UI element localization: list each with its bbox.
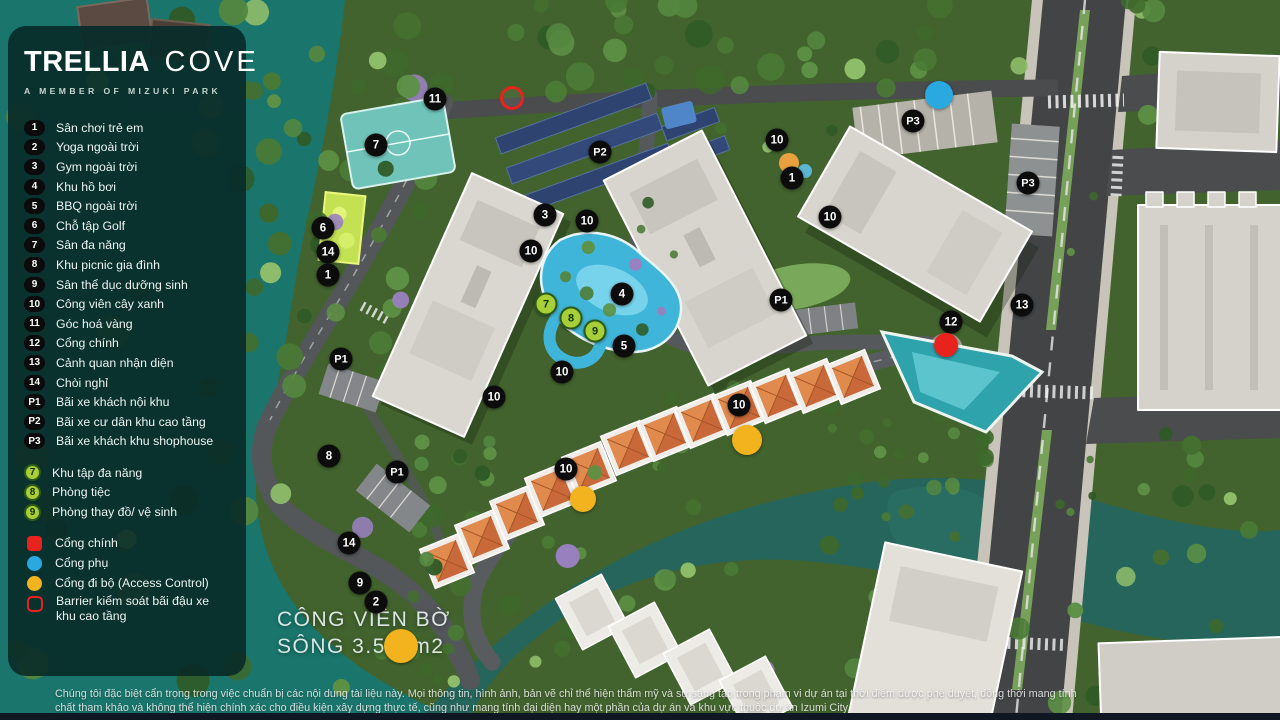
map-marker-1: 1 (781, 167, 804, 190)
map-marker-10: 10 (520, 240, 543, 263)
legend-item-13: 13Cảnh quan nhận diện (24, 353, 236, 373)
legend-badge-11: 11 (24, 316, 45, 332)
map-marker-green-8: 8 (560, 307, 583, 330)
map-marker-yellow-gate (384, 629, 418, 663)
legend-gate-label-yellow: Cổng đi bộ (Access Control) (55, 576, 209, 590)
legend-badge-green-8: 8 (24, 484, 41, 501)
map-marker-6: 6 (312, 217, 335, 240)
map-marker-9: 9 (349, 572, 372, 595)
legend-item-green-8: 8Phòng tiệc (24, 483, 236, 503)
legend-gates-list: Cổng chínhCổng phụCổng đi bộ (Access Con… (24, 534, 236, 625)
map-marker-yellow-gate (570, 486, 596, 512)
legend-label-11: Góc hoá vàng (56, 317, 133, 331)
legend-item-4: 4Khu hồ bơi (24, 177, 236, 197)
map-marker-10: 10 (483, 386, 506, 409)
map-marker-5: 5 (613, 335, 636, 358)
legend-badge-4: 4 (24, 179, 45, 195)
legend-label-P1: Bãi xe khách nội khu (56, 395, 169, 409)
map-marker-10: 10 (555, 458, 578, 481)
map-marker-green-7: 7 (535, 293, 558, 316)
map-marker-10: 10 (819, 206, 842, 229)
map-marker-green-9: 9 (584, 320, 607, 343)
legend-item-2: 2Yoga ngoài trời (24, 138, 236, 158)
disclaimer-line1: Chúng tôi đặc biệt cẩn trọng trong việc … (55, 687, 1195, 701)
legend-gate-red: Cổng chính (24, 534, 236, 553)
legend-label-4: Khu hồ bơi (56, 180, 116, 194)
map-marker-4: 4 (611, 283, 634, 306)
map-marker-14: 14 (338, 532, 361, 555)
legend-label-2: Yoga ngoài trời (56, 140, 139, 154)
map-marker-8: 8 (318, 445, 341, 468)
legend-item-9: 9Sân thể dục dưỡng sinh (24, 275, 236, 295)
map-marker-14: 14 (317, 241, 340, 264)
legend-gate-blue: Cổng phụ (24, 554, 236, 573)
legend-item-10: 10Công viên cây xanh (24, 294, 236, 314)
map-marker-barrier-gate (500, 86, 524, 110)
legend-label-6: Chỗ tập Golf (56, 219, 125, 233)
legend-item-8: 8Khu picnic gia đình (24, 255, 236, 275)
legend-badge-6: 6 (24, 218, 45, 234)
legend-item-7: 7Sân đa năng (24, 236, 236, 256)
legend-numbered-list: 1Sân chơi trẻ em2Yoga ngoài trời3Gym ngo… (24, 118, 236, 451)
legend-badge-P1: P1 (24, 394, 45, 410)
map-marker-red-gate (934, 333, 958, 357)
map-marker-10: 10 (766, 129, 789, 152)
legend-item-green-7: 7Khu tập đa năng (24, 463, 236, 483)
legend-badge-1: 1 (24, 120, 45, 136)
map-marker-3: 3 (534, 204, 557, 227)
legend-label-P3: Bãi xe khách khu shophouse (56, 434, 213, 448)
yellow-gate-icon (27, 576, 42, 591)
legend-item-3: 3Gym ngoài trời (24, 157, 236, 177)
legend-label-green-7: Khu tập đa năng (52, 466, 142, 480)
disclaimer: Chúng tôi đặc biệt cẩn trọng trong việc … (55, 687, 1195, 716)
project-title: TRELLIA COVE (24, 46, 236, 79)
legend-gate-yellow: Cổng đi bộ (Access Control) (24, 574, 236, 593)
legend-label-green-8: Phòng tiệc (52, 485, 110, 499)
map-marker-p1: P1 (386, 461, 409, 484)
legend-item-P2: P2Bãi xe cư dân khu cao tầng (24, 412, 236, 432)
legend-label-9: Sân thể dục dưỡng sinh (56, 278, 188, 292)
legend-label-13: Cảnh quan nhận diện (56, 356, 174, 370)
legend-label-12: Cổng chính (56, 336, 119, 350)
legend-badge-2: 2 (24, 139, 45, 155)
legend-badge-P3: P3 (24, 433, 45, 449)
map-marker-10: 10 (551, 361, 574, 384)
legend-item-P3: P3Bãi xe khách khu shophouse (24, 432, 236, 452)
legend-badge-12: 12 (24, 335, 45, 351)
legend-gate-label-barrier: Barrier kiểm soát bãi đậu xekhu cao tầng (56, 594, 209, 625)
map-marker-10: 10 (576, 210, 599, 233)
map-marker-p1: P1 (330, 348, 353, 371)
legend-badge-5: 5 (24, 198, 45, 214)
legend-label-7: Sân đa năng (56, 238, 126, 252)
legend-item-P1: P1Bãi xe khách nội khu (24, 392, 236, 412)
barrier-gate-icon (27, 596, 43, 612)
legend-badge-3: 3 (24, 159, 45, 175)
map-marker-p1: P1 (770, 289, 793, 312)
map-marker-13: 13 (1011, 294, 1034, 317)
legend-badge-7: 7 (24, 237, 45, 253)
map-marker-p3: P3 (902, 110, 925, 133)
legend-item-11: 11Góc hoá vàng (24, 314, 236, 334)
legend-label-1: Sân chơi trẻ em (56, 121, 143, 135)
legend-label-green-9: Phòng thay đồ/ vệ sinh (52, 505, 177, 519)
legend-item-5: 5BBQ ngoài trời (24, 196, 236, 216)
map-marker-p2: P2 (589, 141, 612, 164)
legend-badge-10: 10 (24, 296, 45, 312)
project-subtitle: A MEMBER OF MIZUKI PARK (24, 86, 236, 96)
legend-gate-label-red: Cổng chính (55, 536, 118, 550)
legend-item-1: 1Sân chơi trẻ em (24, 118, 236, 138)
legend-badge-14: 14 (24, 375, 45, 391)
legend-item-green-9: 9Phòng thay đồ/ vệ sinh (24, 502, 236, 522)
legend-label-3: Gym ngoài trời (56, 160, 137, 174)
legend-gate-barrier: Barrier kiểm soát bãi đậu xekhu cao tầng (24, 594, 236, 625)
map-marker-12: 12 (940, 311, 963, 334)
map-marker-yellow-gate (732, 425, 762, 455)
map-marker-blue-gate (925, 81, 953, 109)
legend-item-12: 12Cổng chính (24, 334, 236, 354)
red-gate-icon (27, 536, 42, 551)
project-title-secondary: COVE (165, 46, 259, 78)
legend-badge-13: 13 (24, 355, 45, 371)
legend-item-6: 6Chỗ tập Golf (24, 216, 236, 236)
site-plan-page: CÔNG VIÊN BỜ SÔNG 3.500m2 117P2101P3P361… (0, 0, 1280, 720)
legend-badge-8: 8 (24, 257, 45, 273)
legend-gate-label-blue: Cổng phụ (55, 556, 108, 570)
bottom-bar (0, 713, 1280, 720)
map-marker-7: 7 (365, 134, 388, 157)
legend-label-14: Chòi nghỉ (56, 376, 108, 390)
map-marker-11: 11 (424, 88, 447, 111)
legend-item-14: 14Chòi nghỉ (24, 373, 236, 393)
legend-badge-P2: P2 (24, 414, 45, 430)
legend-label-8: Khu picnic gia đình (56, 258, 160, 272)
legend-label-P2: Bãi xe cư dân khu cao tầng (56, 415, 206, 429)
legend-label-10: Công viên cây xanh (56, 297, 164, 311)
legend-label-5: BBQ ngoài trời (56, 199, 137, 213)
project-title-primary: TRELLIA (24, 46, 150, 78)
legend-badge-9: 9 (24, 277, 45, 293)
legend-badge-green-9: 9 (24, 504, 41, 521)
legend-panel: TRELLIA COVE A MEMBER OF MIZUKI PARK 1Sâ… (8, 26, 246, 676)
map-marker-p3: P3 (1017, 172, 1040, 195)
map-marker-1: 1 (317, 264, 340, 287)
map-marker-2: 2 (365, 591, 388, 614)
map-marker-10: 10 (728, 394, 751, 417)
blue-gate-icon (27, 556, 42, 571)
legend-green-list: 7Khu tập đa năng8Phòng tiệc9Phòng thay đ… (24, 463, 236, 522)
legend-badge-green-7: 7 (24, 464, 41, 481)
